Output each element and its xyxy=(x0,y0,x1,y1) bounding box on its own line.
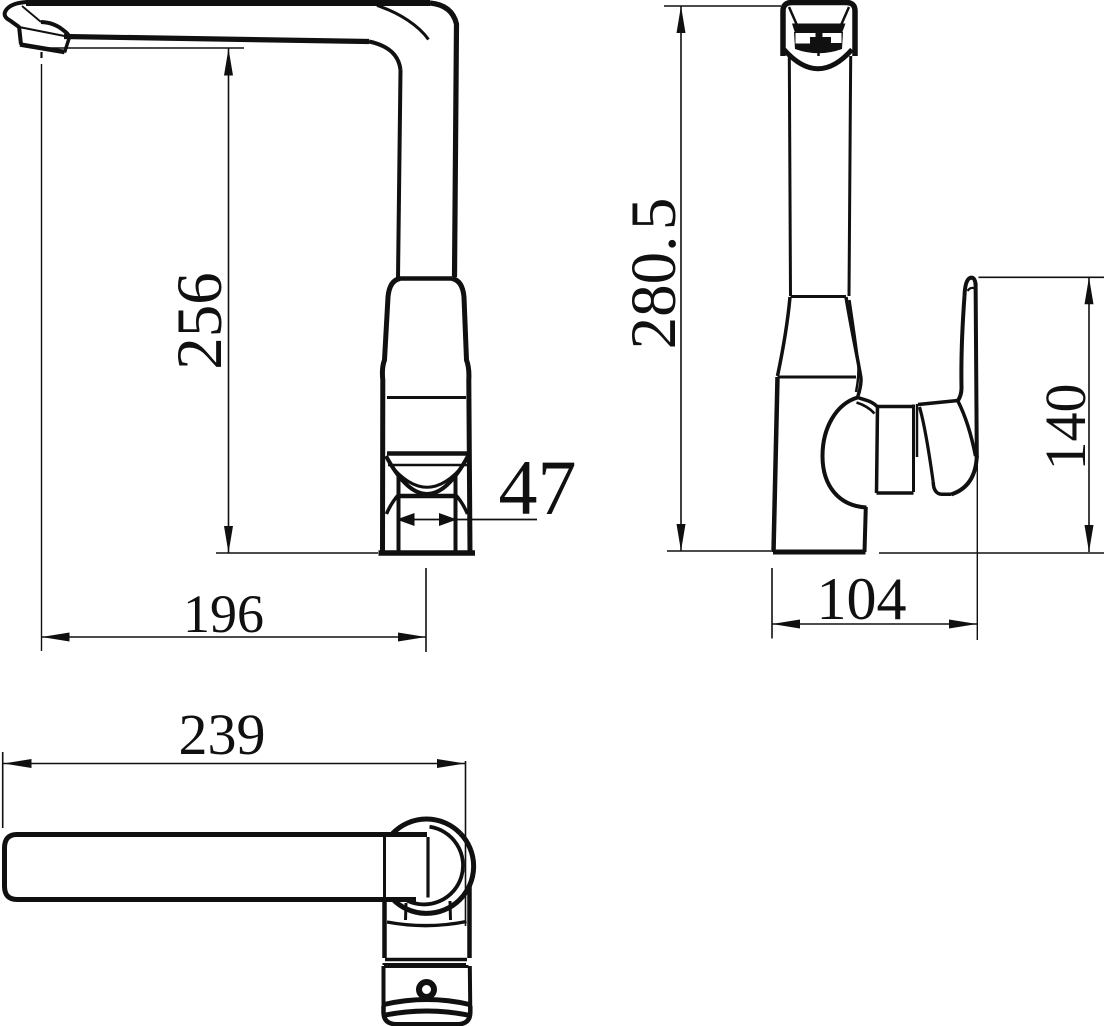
svg-text:196: 196 xyxy=(183,584,264,644)
svg-text:47: 47 xyxy=(499,444,577,531)
svg-text:104: 104 xyxy=(817,566,907,632)
svg-text:140: 140 xyxy=(1033,384,1098,471)
svg-text:239: 239 xyxy=(179,702,266,767)
svg-text:280. 5: 280. 5 xyxy=(618,198,690,350)
svg-text:256: 256 xyxy=(164,272,236,370)
